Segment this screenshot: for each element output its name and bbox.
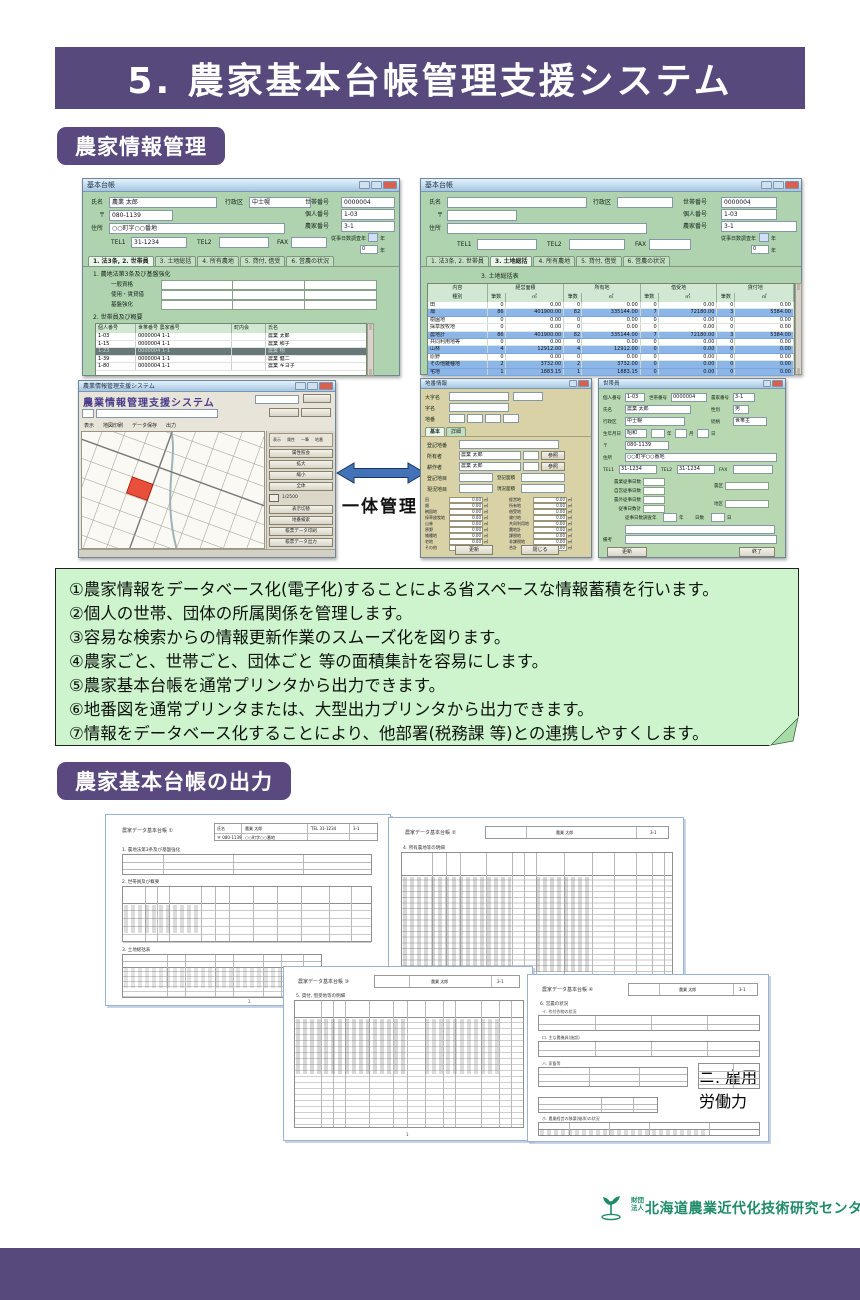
year-unit: 年 <box>380 235 385 243</box>
zip-label: 〒 <box>603 443 608 451</box>
titlebar[interactable]: 地番情報 <box>421 379 591 389</box>
district-label: 行政区 <box>225 199 243 207</box>
menu-item[interactable]: データ保存 <box>132 422 157 429</box>
person-no-label: 個人番号 <box>305 211 329 219</box>
zip-field[interactable] <box>447 210 517 221</box>
name-label: 氏名 <box>91 199 103 207</box>
tab[interactable]: 4. 所有農地 <box>533 256 575 266</box>
farm-no-field[interactable]: 3-1 <box>341 221 395 232</box>
land-row[interactable]: 樹園地 0 0.00 0 0.00 0 0.00 0 0.00 <box>428 317 794 324</box>
update-button[interactable]: 更新 <box>455 545 493 555</box>
zip-field[interactable]: 080-1139 <box>109 210 173 221</box>
window-controls <box>763 380 783 387</box>
year-unit2: 年 <box>380 247 385 255</box>
era-field[interactable]: 昭和 <box>625 429 647 438</box>
farm-no-label: 農家番号 <box>305 223 329 231</box>
status-field[interactable] <box>625 525 775 534</box>
tel2-field[interactable] <box>219 237 269 248</box>
member-row[interactable]: 1-15 0000004 1-1 農業 和子 <box>96 341 366 349</box>
section2-title: 2. 世帯員及び概要 <box>93 314 143 322</box>
feature-line: ⑦情報をデータベース化することにより、他部署(税務課 等)との連携しやすくします… <box>69 722 788 746</box>
household-no-label: 世帯番号 <box>683 199 707 207</box>
owner-rows: 所有者 農業 太郎 参照 耕作者 農業 太郎 参照 <box>421 451 593 473</box>
tel1-field[interactable] <box>477 239 537 250</box>
cell[interactable] <box>161 300 233 310</box>
land-summary-table: 内容 経営面積 所有地 借受地 貸付地 種別 筆数 ㎡ 筆数 ㎡ 筆数 ㎡ 筆数… <box>427 283 795 375</box>
birth-day-field[interactable] <box>697 429 709 438</box>
tel2-field[interactable] <box>569 239 625 250</box>
name-label: 氏名 <box>603 407 612 415</box>
titlebar[interactable]: 基本台帳 <box>83 179 399 192</box>
report-section: 4. 所有農地等の明細 <box>403 845 445 851</box>
gender-label: 性別 <box>711 407 720 415</box>
section1-row: 基盤強化 <box>109 300 377 310</box>
minimize-icon[interactable] <box>569 380 577 387</box>
person-no-field[interactable]: 1-03 <box>341 209 395 220</box>
touki-chiban-field[interactable] <box>459 440 559 449</box>
genkyo-chimoku-label: 現況地目 <box>427 486 447 494</box>
oaza-code-field[interactable] <box>513 392 543 401</box>
page-number: 1 <box>248 999 251 1004</box>
member-row[interactable]: 1-39 0000004 1-1 農業 健二 <box>96 356 366 364</box>
window-controls <box>761 181 799 189</box>
member-row[interactable]: 1-80 0000004 1-1 農業 キヨ子 <box>96 363 366 371</box>
report-sub-table-c <box>538 1067 688 1087</box>
fax-label: FAX <box>635 241 646 249</box>
window-title: 基本台帳 <box>425 181 453 190</box>
address-field[interactable]: ○○町字○○番地 <box>109 223 285 234</box>
owner-code-field[interactable] <box>523 462 539 471</box>
map-combo[interactable] <box>255 395 299 404</box>
farm-no-field[interactable]: 3-1 <box>733 393 755 402</box>
tab-divider <box>421 266 801 267</box>
tab[interactable]: 3. 土地総括 <box>155 256 197 266</box>
feature-line: ①農家情報をデータベース化(電子化)することによる省スペースな情報蓄積を行います… <box>69 578 788 602</box>
household-no-field[interactable]: 0000004 <box>671 393 707 402</box>
map-search-input[interactable] <box>96 409 218 418</box>
section-badge-farm-info: 農家情報管理 <box>57 127 225 165</box>
name-label: 氏名 <box>429 199 441 207</box>
window-title: 基本台帳 <box>87 181 115 190</box>
land-row[interactable]: 採草放牧地 0 0.00 0 0.00 0 0.00 0 0.00 <box>428 324 794 331</box>
chiban-field-4[interactable] <box>503 414 519 423</box>
map-tool-button[interactable]: 縮小 <box>269 471 333 480</box>
feature-line: ④農家ごと、世帯ごと、団体ごと 等の面積集計を容易にします。 <box>69 650 788 674</box>
farm-no-label: 農家番号 <box>711 395 729 403</box>
land-table-group-header: 内容 経営面積 所有地 借受地 貸付地 <box>428 284 794 293</box>
window-title: 世帯員 <box>603 380 620 389</box>
map-header-button[interactable] <box>303 394 331 403</box>
map-tool-button[interactable]: 全体 <box>269 482 333 491</box>
org-type: 財団法人 <box>631 1197 644 1212</box>
chiban-field-3[interactable] <box>485 414 501 423</box>
district-field[interactable]: 中士幌 <box>249 197 311 208</box>
minimize-icon[interactable] <box>295 382 306 390</box>
tab[interactable]: 4. 所有農地 <box>197 256 239 266</box>
window-household-member: 世帯員 個人番号 1-03 世帯番号 0000004 農家番号 3-1 氏名 農… <box>598 378 786 558</box>
work-days-row: 自営従事日数 <box>599 486 699 495</box>
map-tool-button[interactable]: 表示切替 <box>269 505 333 514</box>
owner-label: 耕作者 <box>427 464 442 472</box>
cell[interactable] <box>161 290 233 300</box>
menu-item[interactable]: 表示 <box>84 422 94 429</box>
tel1-label: TEL1 <box>603 467 614 475</box>
section1-row: 一般資格 <box>109 280 377 290</box>
owner-label: 所有者 <box>427 453 442 461</box>
note-label: 備考 <box>603 537 612 545</box>
report-sub-table-a <box>538 1015 760 1031</box>
map-tool-button[interactable]: 帳票データ印刷 <box>269 527 333 536</box>
report-title: 農家データ基本台帳 ② <box>405 829 456 836</box>
feature-list-box: ①農家情報をデータベース化(電子化)することによる省スペースな情報蓄積を行います… <box>55 568 799 746</box>
district-label: 行政区 <box>603 419 617 427</box>
form-body: 個人番号 1-03 世帯番号 0000004 農家番号 3-1 氏名 農業 太郎… <box>599 389 785 557</box>
land-row[interactable]: 農地計 86 401900.00 82 335144.00 7 72180.00… <box>428 332 794 339</box>
cell[interactable] <box>233 290 305 300</box>
fax-field[interactable] <box>649 239 691 250</box>
touki-menseki-label: 登記面積 <box>497 475 515 483</box>
close-icon[interactable] <box>578 380 589 387</box>
legend-item: 属性 <box>287 437 295 442</box>
genkyo-menseki-field[interactable] <box>521 484 565 493</box>
name-field[interactable]: 農業 太郎 <box>109 197 217 208</box>
map-app-title: 農業情報管理支援システム <box>83 394 215 409</box>
feature-line: ⑤農家基本台帳を通常プリンタから出力できます。 <box>69 674 788 698</box>
land-row[interactable]: 山林 4 12912.00 4 12912.00 0 0.00 0 0.00 <box>428 346 794 353</box>
map-canvas[interactable] <box>81 431 265 549</box>
owner-name-field[interactable]: 農業 太郎 <box>459 451 521 460</box>
map-tool-button[interactable]: 拡大 <box>269 460 333 469</box>
touki-chimoku-field[interactable] <box>459 473 493 482</box>
close-icon[interactable] <box>319 382 333 390</box>
district-field[interactable] <box>617 197 673 208</box>
menu-item[interactable]: 地図印刷 <box>103 422 123 429</box>
window-basic-ledger-members: 基本台帳 氏名 農業 太郎 行政区 中士幌 世帯番号 0000004 〒 080… <box>82 178 400 376</box>
lookup-button[interactable]: 参照 <box>541 462 565 471</box>
printer-icon[interactable] <box>269 494 279 502</box>
map-tool-button[interactable]: 地番検索 <box>269 516 333 525</box>
genkyo-menseki-label: 現況面積 <box>497 486 515 494</box>
address-field[interactable] <box>447 223 647 234</box>
gender-field[interactable]: 男 <box>733 405 749 414</box>
land-table-sub-header: 種別 筆数 ㎡ 筆数 ㎡ 筆数 ㎡ 筆数 ㎡ <box>428 293 794 302</box>
fax-label: FAX <box>719 467 727 475</box>
tab-strip: 1. 法3条, 2. 世帯員3. 土地総括4. 所有農地5. 貸付, 借受6. … <box>426 256 670 266</box>
land-row[interactable]: 田 0 0.00 0 0.00 0 0.00 0 0.00 <box>428 302 794 309</box>
map-side-panel: 表示属性一筆地番 属性照会拡大縮小全体 1/2500 表示切替地番検索帳票データ… <box>266 431 335 549</box>
report-page-4: 農家データ基本台帳 ④ 農業 太郎 3-1 6. 営農の状況 イ. 作付作物の状… <box>527 974 769 1142</box>
window-basic-ledger-land: 基本台帳 氏名 行政区 世帯番号 0000004 〒 個人番号 1-03 住所 … <box>420 178 802 375</box>
map-search-button[interactable] <box>269 408 299 417</box>
zip-label: 〒 <box>99 212 105 220</box>
minimize-icon[interactable] <box>761 181 772 189</box>
land-rows: 田 0 0.00 0 0.00 0 0.00 0 0.00 畑 86 40 <box>428 302 794 376</box>
chiban-label: 地番 <box>425 416 435 424</box>
legend-item: 表示 <box>273 437 281 442</box>
oaza-label: 大字名 <box>425 394 440 402</box>
note-field[interactable] <box>625 535 777 544</box>
menu-item[interactable]: 出力 <box>166 422 176 429</box>
household-no-label: 世帯番号 <box>305 199 329 207</box>
update-button[interactable]: 更新 <box>607 547 647 557</box>
tel1-label: TEL1 <box>111 239 126 247</box>
member-table: 個人番号 世帯番号 農家番号 町内会 氏名 1-03 0000004 1-1 農… <box>95 323 367 376</box>
tab[interactable]: 3. 土地総括 <box>490 256 533 266</box>
address-label: 住所 <box>91 225 103 233</box>
map-legend: 表示属性一筆地番 <box>269 433 333 447</box>
org-logo-icon <box>598 1192 626 1222</box>
feature-line: ②個人の世帯、団体の所属関係を管理します。 <box>69 602 788 626</box>
owner-code-field[interactable] <box>523 451 539 460</box>
work-days-rows: 農業従事日数 自営従事日数 農外従事日数 従事日数計 <box>599 477 699 513</box>
report-section: 1. 農地法第3条及び基盤強化 <box>122 847 180 853</box>
survey-year2-field[interactable]: 0 <box>360 245 378 254</box>
cell[interactable] <box>233 280 305 290</box>
fax-field[interactable] <box>733 465 773 474</box>
map-tool-button[interactable]: 帳票データ出力 <box>269 538 333 547</box>
work-days-row: 従事日数計 <box>599 504 699 513</box>
land-row[interactable]: 畑 86 401900.00 82 335144.00 7 72180.00 3… <box>428 309 794 316</box>
window-controls <box>569 380 589 387</box>
col-person-no: 個人番号 <box>96 324 136 333</box>
tab-strip: 1. 法3条, 2. 世帯員3. 土地総括4. 所有農地5. 貸付, 借受6. … <box>88 256 334 266</box>
titlebar[interactable]: 農業情報管理支援システム <box>79 381 335 392</box>
genkyo-chimoku-field[interactable] <box>459 484 493 493</box>
report-sub-table-c2: ニ. 雇用労働力 <box>698 1063 760 1089</box>
scale-row: 1/2500 <box>269 493 333 503</box>
footer-credit: 財団法人 北海道農業近代化技術研究センター <box>598 1192 848 1224</box>
map-config-button[interactable] <box>301 408 331 417</box>
year-unit2: 年 <box>771 247 776 255</box>
work-days-row: 農外従事日数 <box>599 495 699 504</box>
tab-divider <box>83 266 399 267</box>
fax-field[interactable] <box>291 237 327 248</box>
tel2-label: TEL2 <box>661 467 672 475</box>
land-table-title: 3. 土地総括表 <box>481 273 519 281</box>
land-row[interactable]: 共同利用地等 0 0.00 0 0.00 0 0.00 0 0.00 <box>428 339 794 346</box>
close-icon[interactable] <box>772 380 783 387</box>
close-button[interactable]: 閉じる <box>521 545 559 555</box>
relation-field[interactable]: 世帯主 <box>733 417 767 426</box>
cell[interactable] <box>305 290 377 300</box>
day-unit: 日 <box>711 431 716 439</box>
cell[interactable] <box>305 300 377 310</box>
report-section: 2. 世帯員及び概要 <box>122 879 159 885</box>
member-table-header: 個人番号 世帯番号 農家番号 町内会 氏名 <box>96 324 366 333</box>
person-no-label: 個人番号 <box>603 395 621 403</box>
legend-item: 地番 <box>315 437 323 442</box>
map-buttons-bottom: 表示切替地番検索帳票データ印刷帳票データ出力 <box>269 505 333 547</box>
map-status-bar <box>79 549 335 557</box>
person-no-field[interactable]: 1-03 <box>625 393 645 402</box>
tab[interactable]: 1. 法3条, 2. 世帯員 <box>88 256 154 266</box>
tab-strip: 基本詳細 <box>425 427 466 436</box>
member-table-scrollbar[interactable] <box>367 323 374 376</box>
birth-month-field[interactable] <box>675 429 687 438</box>
exit-button[interactable]: 終了 <box>739 547 775 557</box>
cell[interactable] <box>305 280 377 290</box>
folded-corner <box>769 716 799 746</box>
farm-no-label: 農家番号 <box>683 223 707 231</box>
survey-year-field[interactable] <box>759 233 769 242</box>
minimize-icon[interactable] <box>763 380 771 387</box>
minimize-icon[interactable] <box>359 181 370 189</box>
window-map-system: 農業情報管理支援システム 農業情報管理支援システム 表示地図印刷データ保存出力 <box>78 380 336 558</box>
district-row: 地区 <box>705 495 783 513</box>
year-unit: 年 <box>667 431 672 439</box>
report-sub-table-e <box>538 1122 760 1136</box>
page-number: 1 <box>406 1132 409 1137</box>
chiban-field-2[interactable] <box>467 414 483 423</box>
tab-divider <box>421 436 591 437</box>
tel1-field[interactable]: 31-1234 <box>619 465 657 474</box>
window-controls <box>359 181 397 189</box>
section1-title: 1. 農地法第3条及び基盤強化 <box>93 271 170 279</box>
report-sub-table-b <box>538 1041 760 1057</box>
org-name: 北海道農業近代化技術研究センター <box>645 1198 860 1218</box>
member-row[interactable]: 1-23 0000004 1-1 農業 翔 <box>96 348 366 356</box>
close-icon[interactable] <box>383 181 397 189</box>
survey-year2-field[interactable]: 0 <box>751 245 769 254</box>
chiban-field-1[interactable] <box>449 414 465 423</box>
cadastral-map <box>82 432 265 549</box>
report-table-1 <box>122 854 372 875</box>
row-label: 一般資格 <box>109 280 161 290</box>
member-rows: 1-03 0000004 1-1 農業 太郎 1-15 0000004 1-1 … <box>96 333 366 371</box>
section-badge-output: 農家基本台帳の出力 <box>57 762 291 800</box>
tab[interactable]: 6. 営農の状況 <box>286 256 334 266</box>
window-title: 地番情報 <box>425 380 447 389</box>
name-field[interactable]: 農業 太郎 <box>625 405 691 414</box>
legend-item: 一筆 <box>301 437 309 442</box>
section1-row: 使用・賃貸借 <box>109 290 377 300</box>
tab[interactable]: 詳細 <box>446 427 466 436</box>
touki-menseki-field[interactable] <box>521 473 565 482</box>
survey-year-field[interactable] <box>368 233 378 242</box>
address-field[interactable]: ○○町字○○番地 <box>625 453 777 462</box>
relation-label: 続柄 <box>711 419 720 427</box>
tel1-field[interactable]: 31-1234 <box>131 237 187 248</box>
window-controls <box>295 382 333 390</box>
report-title: 農家データ基本台帳 ③ <box>298 978 349 985</box>
maximize-icon[interactable] <box>371 181 382 189</box>
area-grid-right: 経営地0.00㎡ 所有地0.00㎡ 借受地0.00㎡ 貸付地0.00㎡ 共同利用… <box>509 497 589 551</box>
feature-line: ③容易な検索からの情報更新作業のスムーズ化を図ります。 <box>69 626 788 650</box>
map-small-input[interactable] <box>82 409 94 418</box>
day-unit2: 日 <box>727 515 732 523</box>
close-icon[interactable] <box>785 181 799 189</box>
member-row[interactable]: 1-03 0000004 1-1 農業 太郎 <box>96 333 366 341</box>
district-field[interactable]: 中士幌 <box>625 417 685 426</box>
district-label: 行政区 <box>593 199 611 207</box>
birth-label: 生年月日 <box>603 431 621 439</box>
feature-line: ⑥地番図を通常プリンタまたは、大型出力プリンタから出力できます。 <box>69 698 788 722</box>
window-parcel-info: 地番情報 大字名 字名 地番 基本詳細 登記地番 所有者 農業 太郎 <box>420 378 592 558</box>
owner-row: 所有者 農業 太郎 参照 <box>421 451 593 462</box>
map-menu: 表示地図印刷データ保存出力 <box>84 422 176 429</box>
zip-field[interactable]: 080-1139 <box>625 441 669 450</box>
tab[interactable]: 基本 <box>425 427 445 436</box>
report-header-box: 氏名 農業 太郎 TEL 31-1234 3-1 〒 080-1139 ○○町字… <box>214 823 378 841</box>
map-tool-button[interactable]: 属性照会 <box>269 449 333 458</box>
form-body: 氏名 行政区 世帯番号 0000004 〒 個人番号 1-03 住所 農家番号 … <box>421 192 801 374</box>
land-row[interactable]: その他雑種地 2 3732.00 2 3732.00 0 0.00 0 0.00 <box>428 361 794 368</box>
address-label: 住所 <box>603 455 612 463</box>
owner-name-field[interactable]: 農業 太郎 <box>459 462 521 471</box>
land-row[interactable]: 宅地 1 1883.15 1 1883.15 0 0.00 0 0.00 <box>428 369 794 376</box>
double-arrow-icon <box>336 460 426 486</box>
report-title: 農家データ基本台帳 ① <box>122 827 173 834</box>
form-body: 氏名 農業 太郎 行政区 中士幌 世帯番号 0000004 〒 080-1139… <box>83 192 399 375</box>
farm-no-field[interactable]: 3-1 <box>721 221 797 232</box>
birth-year-field[interactable] <box>651 429 665 438</box>
land-table-scrollbar[interactable] <box>795 283 802 375</box>
lookup-button[interactable]: 参照 <box>541 451 565 460</box>
tab[interactable]: 5. 貸付, 借受 <box>240 256 285 266</box>
oaza-field[interactable] <box>449 392 509 401</box>
col-chonaikai: 町内会 <box>232 324 266 333</box>
survey-year-label: 従事日数調査年 <box>331 235 366 243</box>
map-body: 農業情報管理支援システム 表示地図印刷データ保存出力 <box>79 392 335 557</box>
household-no-field[interactable]: 0000004 <box>721 197 777 208</box>
person-no-field[interactable]: 1-03 <box>721 209 777 220</box>
report-header-box: 農業 太郎 3-1 <box>374 975 520 988</box>
row-label: 使用・賃貸借 <box>109 290 161 300</box>
district-rows: 農区 地区 <box>705 477 783 513</box>
titlebar[interactable]: 基本台帳 <box>421 179 801 192</box>
fax-label: FAX <box>277 239 288 247</box>
name-field[interactable] <box>447 197 587 208</box>
footer-bar <box>0 1248 860 1300</box>
days-field[interactable] <box>711 513 725 522</box>
survey-label: 従事日数調査年 <box>625 515 657 523</box>
integration-block: 一体管理 <box>336 460 432 517</box>
household-no-label: 世帯番号 <box>649 395 667 403</box>
report-sub-table-d <box>538 1097 658 1113</box>
titlebar[interactable]: 世帯員 <box>599 379 785 389</box>
report-header-box: 農業 太郎 3-1 <box>485 826 669 839</box>
map-buttons-top: 属性照会拡大縮小全体 <box>269 449 333 491</box>
report-section: 3. 土地総括表 <box>122 947 150 953</box>
maximize-icon[interactable] <box>773 181 784 189</box>
year-unit: 年 <box>771 235 776 243</box>
tab[interactable]: 5. 貸付, 借受 <box>576 256 621 266</box>
survey-year-field[interactable] <box>663 513 677 522</box>
page-title: 5. 農家基本台帳管理支援システム <box>55 47 805 109</box>
tel2-field[interactable]: 31-1234 <box>677 465 715 474</box>
person-no-label: 個人番号 <box>683 211 707 219</box>
page: 5. 農家基本台帳管理支援システム 農家情報管理 基本台帳 氏名 農業 太郎 行… <box>0 0 860 1300</box>
land-row[interactable]: 原野 0 0.00 0 0.00 0 0.00 0 0.00 <box>428 354 794 361</box>
report-header-box: 農業 太郎 3-1 <box>628 983 758 996</box>
cell[interactable] <box>161 280 233 290</box>
aza-field[interactable] <box>449 403 509 412</box>
report-section: 5. 貸付, 借受地等の明細 <box>296 993 345 999</box>
cell[interactable] <box>233 300 305 310</box>
tel2-label: TEL2 <box>547 241 562 249</box>
window-title: 農業情報管理支援システム <box>83 382 155 391</box>
scale-text: 1/2500 <box>282 495 298 500</box>
district-row: 農区 <box>705 477 783 495</box>
maximize-icon[interactable] <box>307 382 318 390</box>
tab[interactable]: 1. 法3条, 2. 世帯員 <box>426 256 489 266</box>
work-days-row: 農業従事日数 <box>599 477 699 486</box>
row-label: 基盤強化 <box>109 300 161 310</box>
address-label: 住所 <box>429 225 441 233</box>
feature-lines: ①農家情報をデータベース化(電子化)することによる省スペースな情報蓄積を行います… <box>69 578 788 746</box>
household-no-field[interactable]: 0000004 <box>341 197 395 208</box>
tab[interactable]: 6. 営農の状況 <box>623 256 671 266</box>
